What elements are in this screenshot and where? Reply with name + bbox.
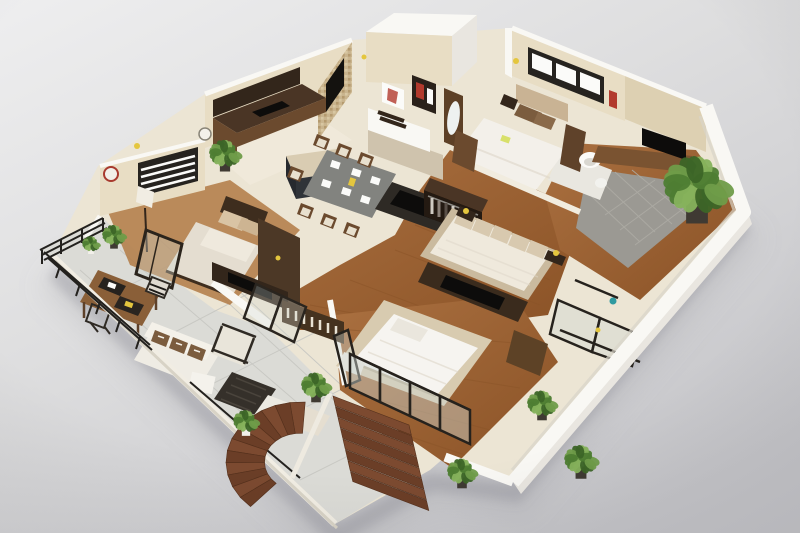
accent-yellow-dot <box>134 143 140 149</box>
accent-teal-dot <box>610 298 617 305</box>
wall-plate-art <box>104 167 118 181</box>
floor-plan-render <box>0 0 800 533</box>
red-wall-art <box>609 90 617 109</box>
wall-plate-art <box>199 128 211 140</box>
accent-yellow-dot <box>553 250 559 256</box>
foyer-tower <box>366 13 477 86</box>
accent-yellow-dot <box>513 58 519 64</box>
accent-yellow-dot <box>596 328 601 333</box>
accent-yellow-dot <box>463 208 469 214</box>
accent-yellow-dot <box>362 55 367 60</box>
bathroom-toilet <box>595 178 607 188</box>
